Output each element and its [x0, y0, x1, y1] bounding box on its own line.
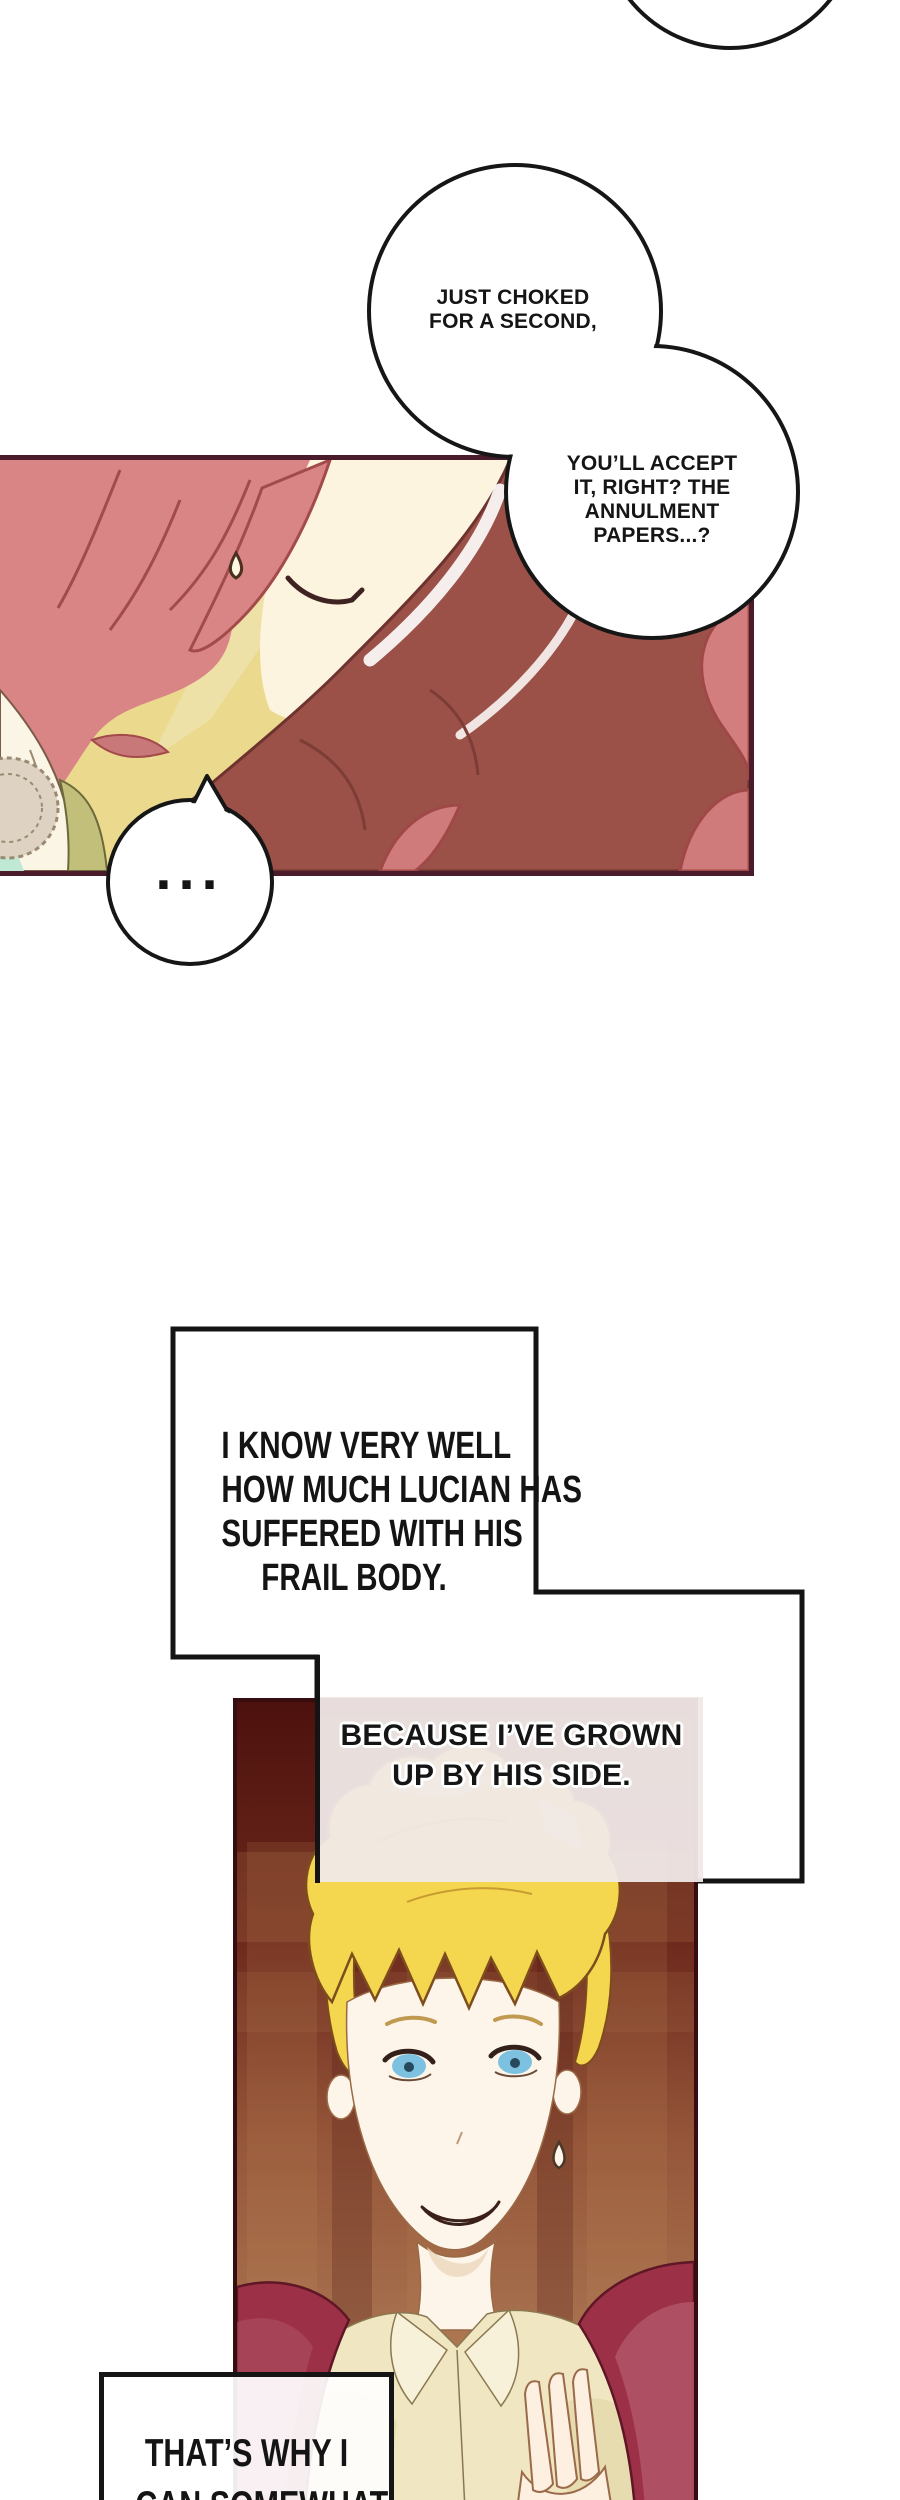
- bubble-ellipsis-text: ...: [140, 845, 240, 895]
- bubble-choked-text: JUST CHOKED FOR A SECOND,: [393, 286, 633, 334]
- bubble-choked-line2: FOR A SECOND,: [393, 310, 633, 334]
- bubble-choked-line1: JUST CHOKED: [393, 286, 633, 310]
- narration-thats-why-text: THAT’S WHY I CAN SOMEWHAT: [135, 2428, 357, 2500]
- bubble-accept-line3: ANNULMENT: [532, 500, 772, 524]
- caption-because-text: BECAUSE I’VE GROWN UP BY HIS SIDE.: [320, 1716, 703, 1796]
- bubble-accept-line2: IT, RIGHT? THE: [532, 476, 772, 500]
- narration-know-line4: FRAIL BODY.: [221, 1556, 486, 1600]
- narration-know-line1: I KNOW VERY WELL: [221, 1424, 486, 1468]
- narration-know-text: I KNOW VERY WELL HOW MUCH LUCIAN HAS SUF…: [221, 1424, 486, 1600]
- bubble-accept-line4: PAPERS...?: [532, 524, 772, 548]
- narration-know-line3: SUFFERED WITH HIS: [221, 1512, 486, 1556]
- narration-know-line2: HOW MUCH LUCIAN HAS: [221, 1468, 486, 1512]
- speech-bubbles-joined: [0, 0, 900, 700]
- caption-because-line2: UP BY HIS SIDE.: [320, 1756, 703, 1796]
- comic-page: JUST CHOKED FOR A SECOND, YOU’LL ACCEPT …: [0, 0, 900, 2500]
- bubble-accept-line1: YOU’LL ACCEPT: [532, 452, 772, 476]
- caption-because-line1: BECAUSE I’VE GROWN: [320, 1716, 703, 1756]
- bubble-accept-text: YOU’LL ACCEPT IT, RIGHT? THE ANNULMENT P…: [532, 452, 772, 548]
- narration-thats-why-line1: THAT’S WHY I: [135, 2428, 357, 2480]
- narration-thats-why-line2: CAN SOMEWHAT: [135, 2480, 357, 2500]
- bubble-cutoff-top: [602, 0, 858, 48]
